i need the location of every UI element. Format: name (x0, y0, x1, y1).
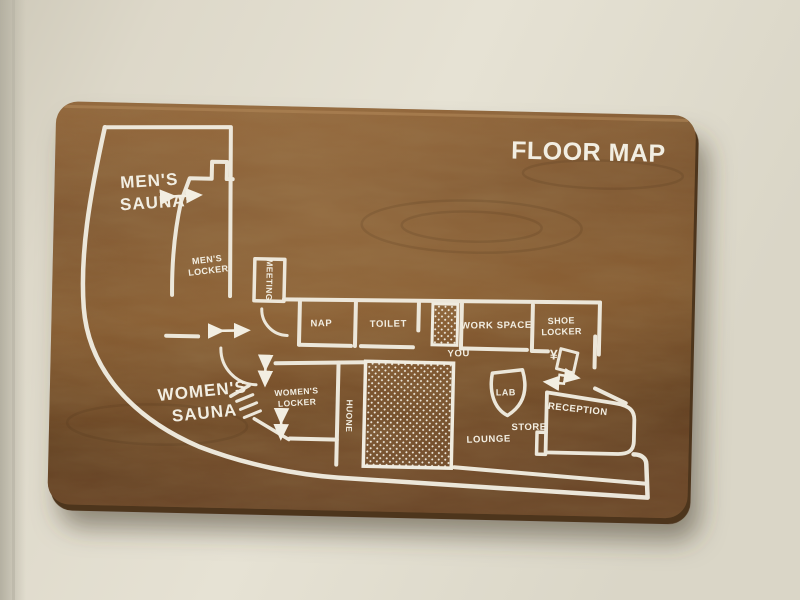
room-label-huone: HUONE (344, 399, 355, 432)
room-label-lounge: LOUNGE (466, 433, 511, 445)
bath-hatch-area (363, 361, 453, 468)
wall-map-right-edge (599, 303, 600, 355)
wall-row-bottom-3 (461, 348, 527, 349)
exit-arrow-icon (551, 382, 565, 383)
wall-womens-locker-right (336, 363, 338, 465)
wall-toilet-left (355, 301, 356, 346)
two-way-door-arrow-icon-junction (216, 330, 242, 332)
room-label-nap: NAP (310, 318, 332, 329)
floor-map-sign: FLOOR MAP MEN'S SAUNA MEN'S LOCKER MEETI… (0, 0, 800, 600)
photo-of-floor-map-sign: FLOOR MAP MEN'S SAUNA MEN'S LOCKER MEETI… (0, 0, 800, 600)
room-label-womens-locker: WOMEN'S LOCKER (274, 385, 319, 409)
room-label-meeting: MEETING (264, 259, 275, 301)
wall-shoelocker-left (532, 305, 533, 351)
room-label-toilet: TOILET (370, 319, 407, 330)
wall-nap-left (299, 300, 300, 345)
wall-womens-locker-bottom (290, 439, 337, 440)
svg-text:MEN'S: MEN'S (120, 170, 179, 193)
you-are-here-label: YOU (447, 348, 470, 359)
wall-toilet-right (418, 302, 419, 330)
wall-junction-stub (166, 336, 198, 337)
currency-yen-label: ¥ (550, 346, 558, 362)
svg-text:SHOE: SHOE (548, 315, 575, 326)
wall-row-bottom-2 (361, 346, 413, 347)
room-label-store: STORE (511, 422, 546, 433)
room-label-work-space: WORK SPACE (461, 320, 532, 332)
elevator-hatch-area (432, 304, 458, 346)
wall-row-bottom-1 (299, 345, 351, 346)
wall-corner-line (12, 0, 15, 600)
page-title: FLOOR MAP (511, 136, 666, 167)
room-label-lab: LAB (496, 387, 516, 397)
wall-gate-side (595, 336, 596, 367)
svg-text:LOCKER: LOCKER (541, 326, 582, 337)
